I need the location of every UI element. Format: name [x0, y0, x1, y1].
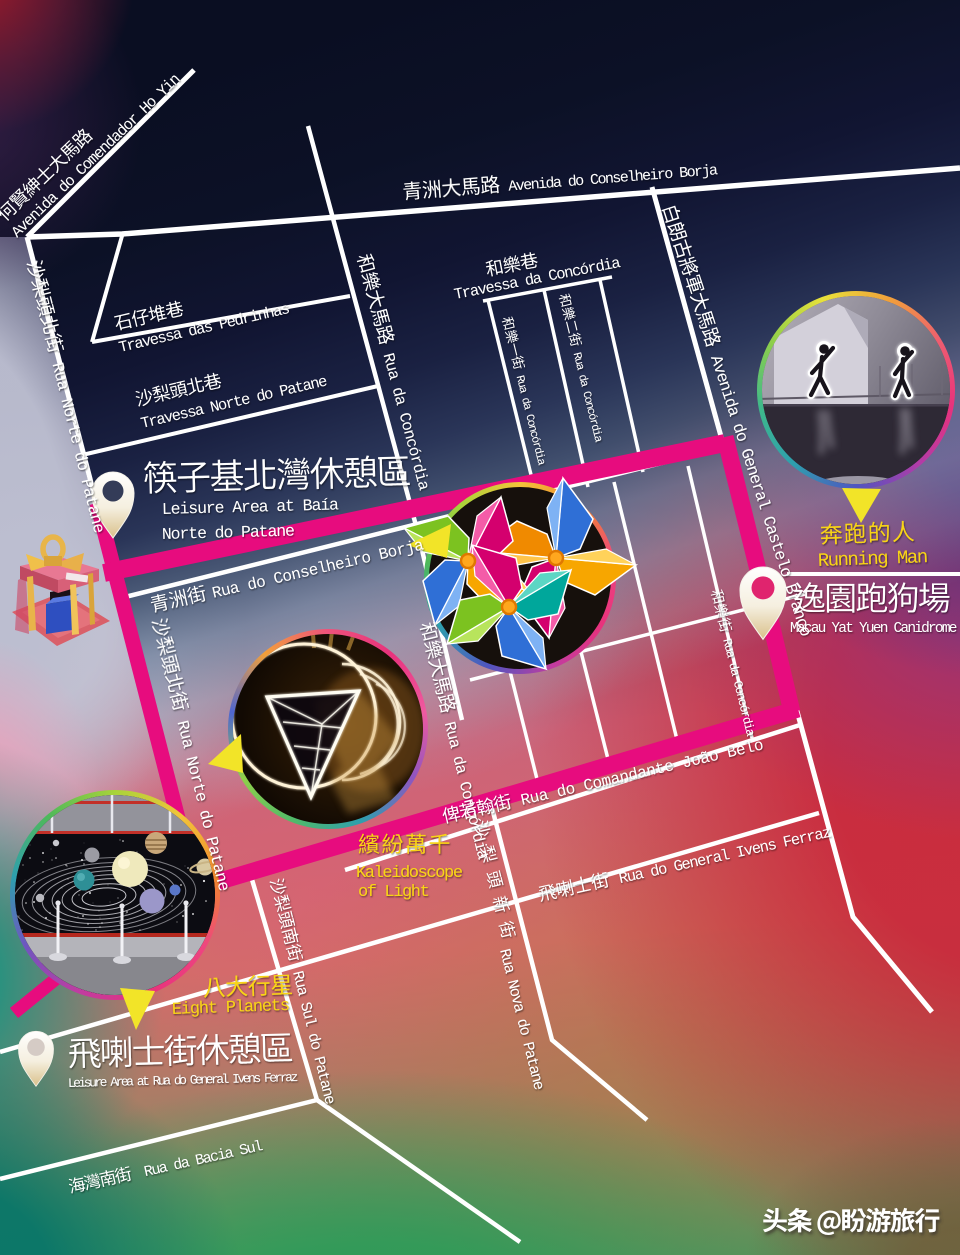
svg-text:Rua da Concórdia: Rua da Concórdia	[513, 374, 548, 467]
svg-text:Avenida do Conselheiro Borja: Avenida do Conselheiro Borja	[508, 162, 719, 195]
svg-text:Rua do Comandante João Belo: Rua do Comandante João Belo	[519, 736, 765, 809]
svg-text:Eight Planets: Eight Planets	[172, 997, 290, 1020]
svg-text:Rua da Bacia Sul: Rua da Bacia Sul	[143, 1138, 265, 1181]
svg-text:Kaleidoscope: Kaleidoscope	[356, 864, 463, 883]
svg-text:Avenida do Comendador Ho Yin: Avenida do Comendador Ho Yin	[8, 71, 184, 242]
svg-text:Travessa das Pedrinhas: Travessa das Pedrinhas	[117, 300, 291, 357]
svg-text:Leisure Area at Rua do General: Leisure Area at Rua do General Ivens Fer…	[68, 1070, 298, 1091]
svg-text:of Light: of Light	[358, 883, 429, 902]
svg-text:Rua Norte do Patane: Rua Norte do Patane	[48, 360, 109, 534]
svg-text:Rua Nova do Patane: Rua Nova do Patane	[495, 947, 548, 1092]
svg-text:Travessa Norte do Patane: Travessa Norte do Patane	[139, 372, 329, 432]
svg-text:Rua da Concórdia: Rua da Concórdia	[719, 637, 757, 738]
svg-text:Travessa da Concórdia: Travessa da Concórdia	[453, 254, 622, 304]
svg-text:Running Man: Running Man	[817, 546, 927, 572]
svg-text:Rua da Concórdia: Rua da Concórdia	[440, 720, 492, 862]
svg-text:Norte do Patane: Norte do Patane	[162, 522, 295, 544]
svg-text:Rua da Concórdia: Rua da Concórdia	[570, 351, 605, 444]
svg-text:Rua do Conselheiro Borja: Rua do Conselheiro Borja	[210, 536, 426, 602]
svg-text:Rua Sul do Patane: Rua Sul do Patane	[288, 969, 339, 1106]
svg-text:Macau Yat Yuen Canidrome: Macau Yat Yuen Canidrome	[790, 621, 957, 637]
svg-text:Rua do General Ivens Ferraz: Rua do General Ivens Ferraz	[617, 824, 833, 889]
svg-text:Leisure Area at Baía: Leisure Area at Baía	[162, 495, 340, 519]
